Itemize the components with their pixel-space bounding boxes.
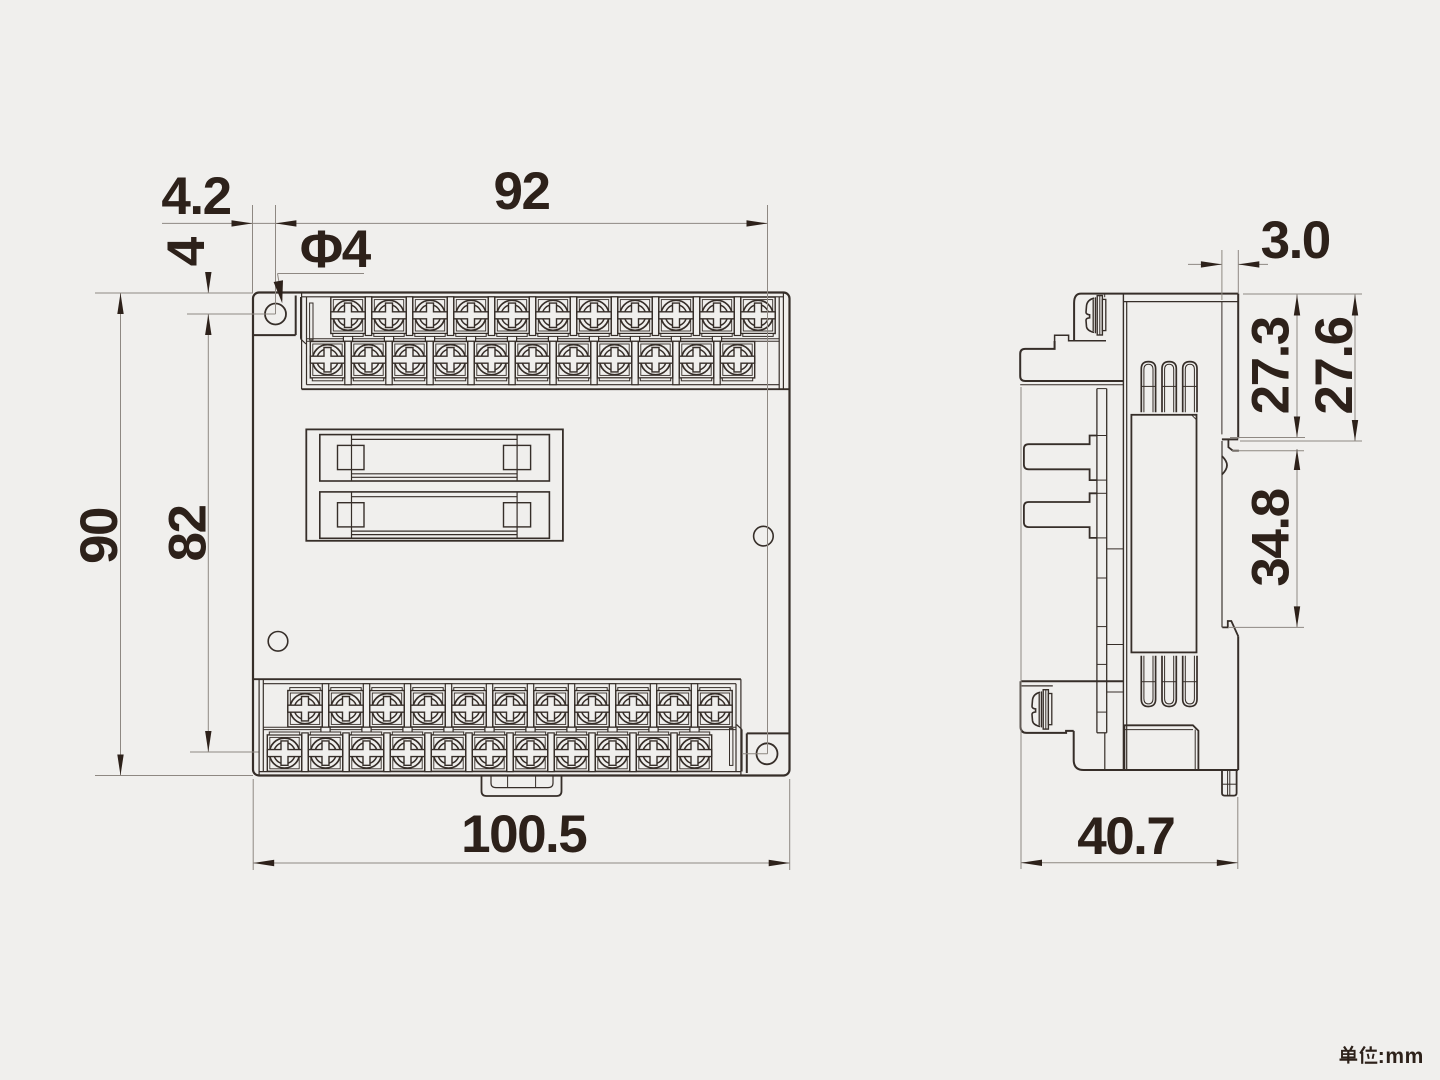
svg-text:27.3: 27.3 bbox=[1242, 317, 1301, 414]
svg-text:Φ4: Φ4 bbox=[300, 220, 372, 279]
svg-text::mm: :mm bbox=[1378, 1045, 1424, 1068]
svg-text:4.2: 4.2 bbox=[161, 167, 230, 226]
svg-text:82: 82 bbox=[159, 506, 218, 562]
svg-text:100.5: 100.5 bbox=[461, 805, 586, 864]
svg-text:92: 92 bbox=[494, 162, 550, 221]
svg-text:34.8: 34.8 bbox=[1242, 489, 1301, 586]
svg-text:90: 90 bbox=[70, 508, 129, 564]
svg-text:3.0: 3.0 bbox=[1261, 211, 1330, 270]
svg-text:4: 4 bbox=[157, 236, 216, 266]
svg-text:27.6: 27.6 bbox=[1305, 317, 1364, 414]
svg-text:40.7: 40.7 bbox=[1077, 807, 1174, 866]
